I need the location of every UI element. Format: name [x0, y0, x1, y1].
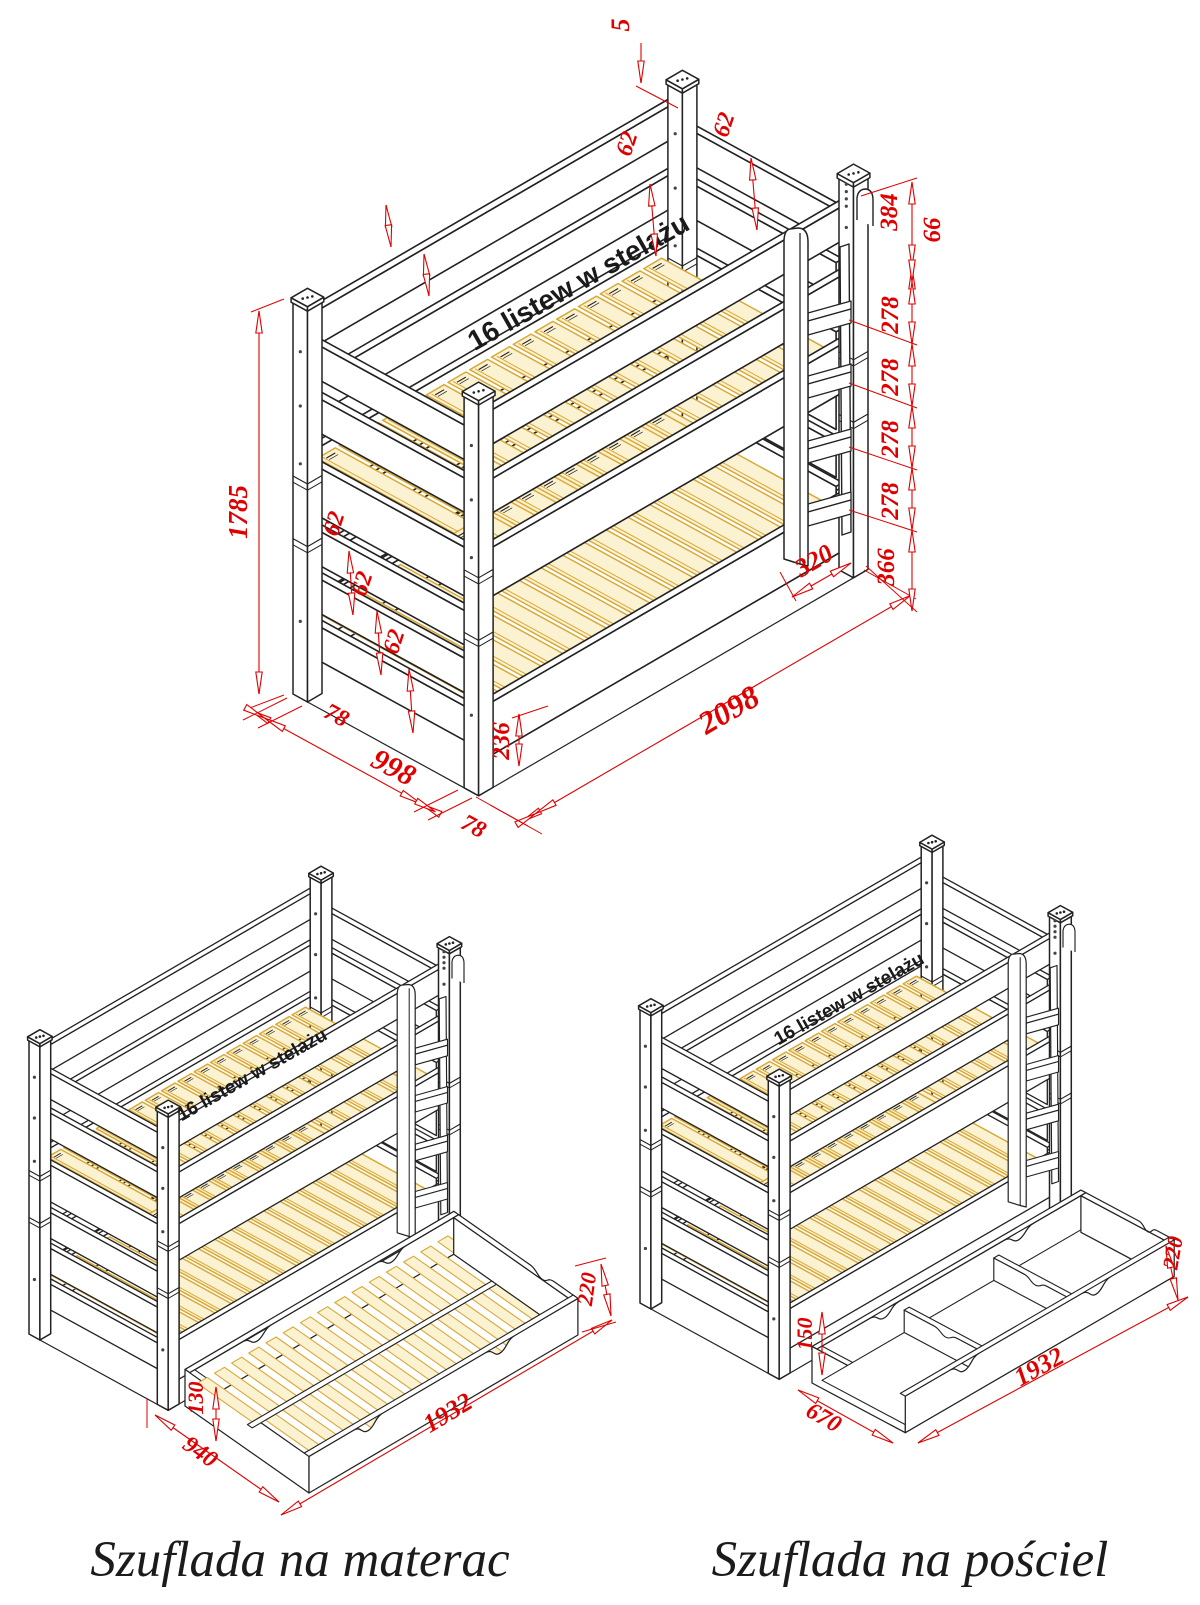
svg-text:Szuflada na materac: Szuflada na materac — [90, 1532, 510, 1588]
svg-text:278: 278 — [877, 420, 904, 459]
svg-text:130: 130 — [183, 1382, 208, 1415]
svg-text:220: 220 — [572, 1271, 601, 1308]
svg-text:278: 278 — [877, 296, 904, 335]
svg-text:384: 384 — [876, 193, 903, 232]
svg-text:236: 236 — [488, 722, 515, 761]
svg-text:66: 66 — [919, 217, 946, 243]
svg-text:278: 278 — [877, 358, 904, 397]
svg-text:Szuflada na pościel: Szuflada na pościel — [712, 1532, 1109, 1588]
svg-text:150: 150 — [792, 1318, 817, 1351]
svg-text:1785: 1785 — [223, 485, 253, 539]
svg-text:278: 278 — [877, 482, 904, 521]
svg-text:5: 5 — [606, 19, 635, 32]
svg-text:366: 366 — [873, 548, 900, 587]
